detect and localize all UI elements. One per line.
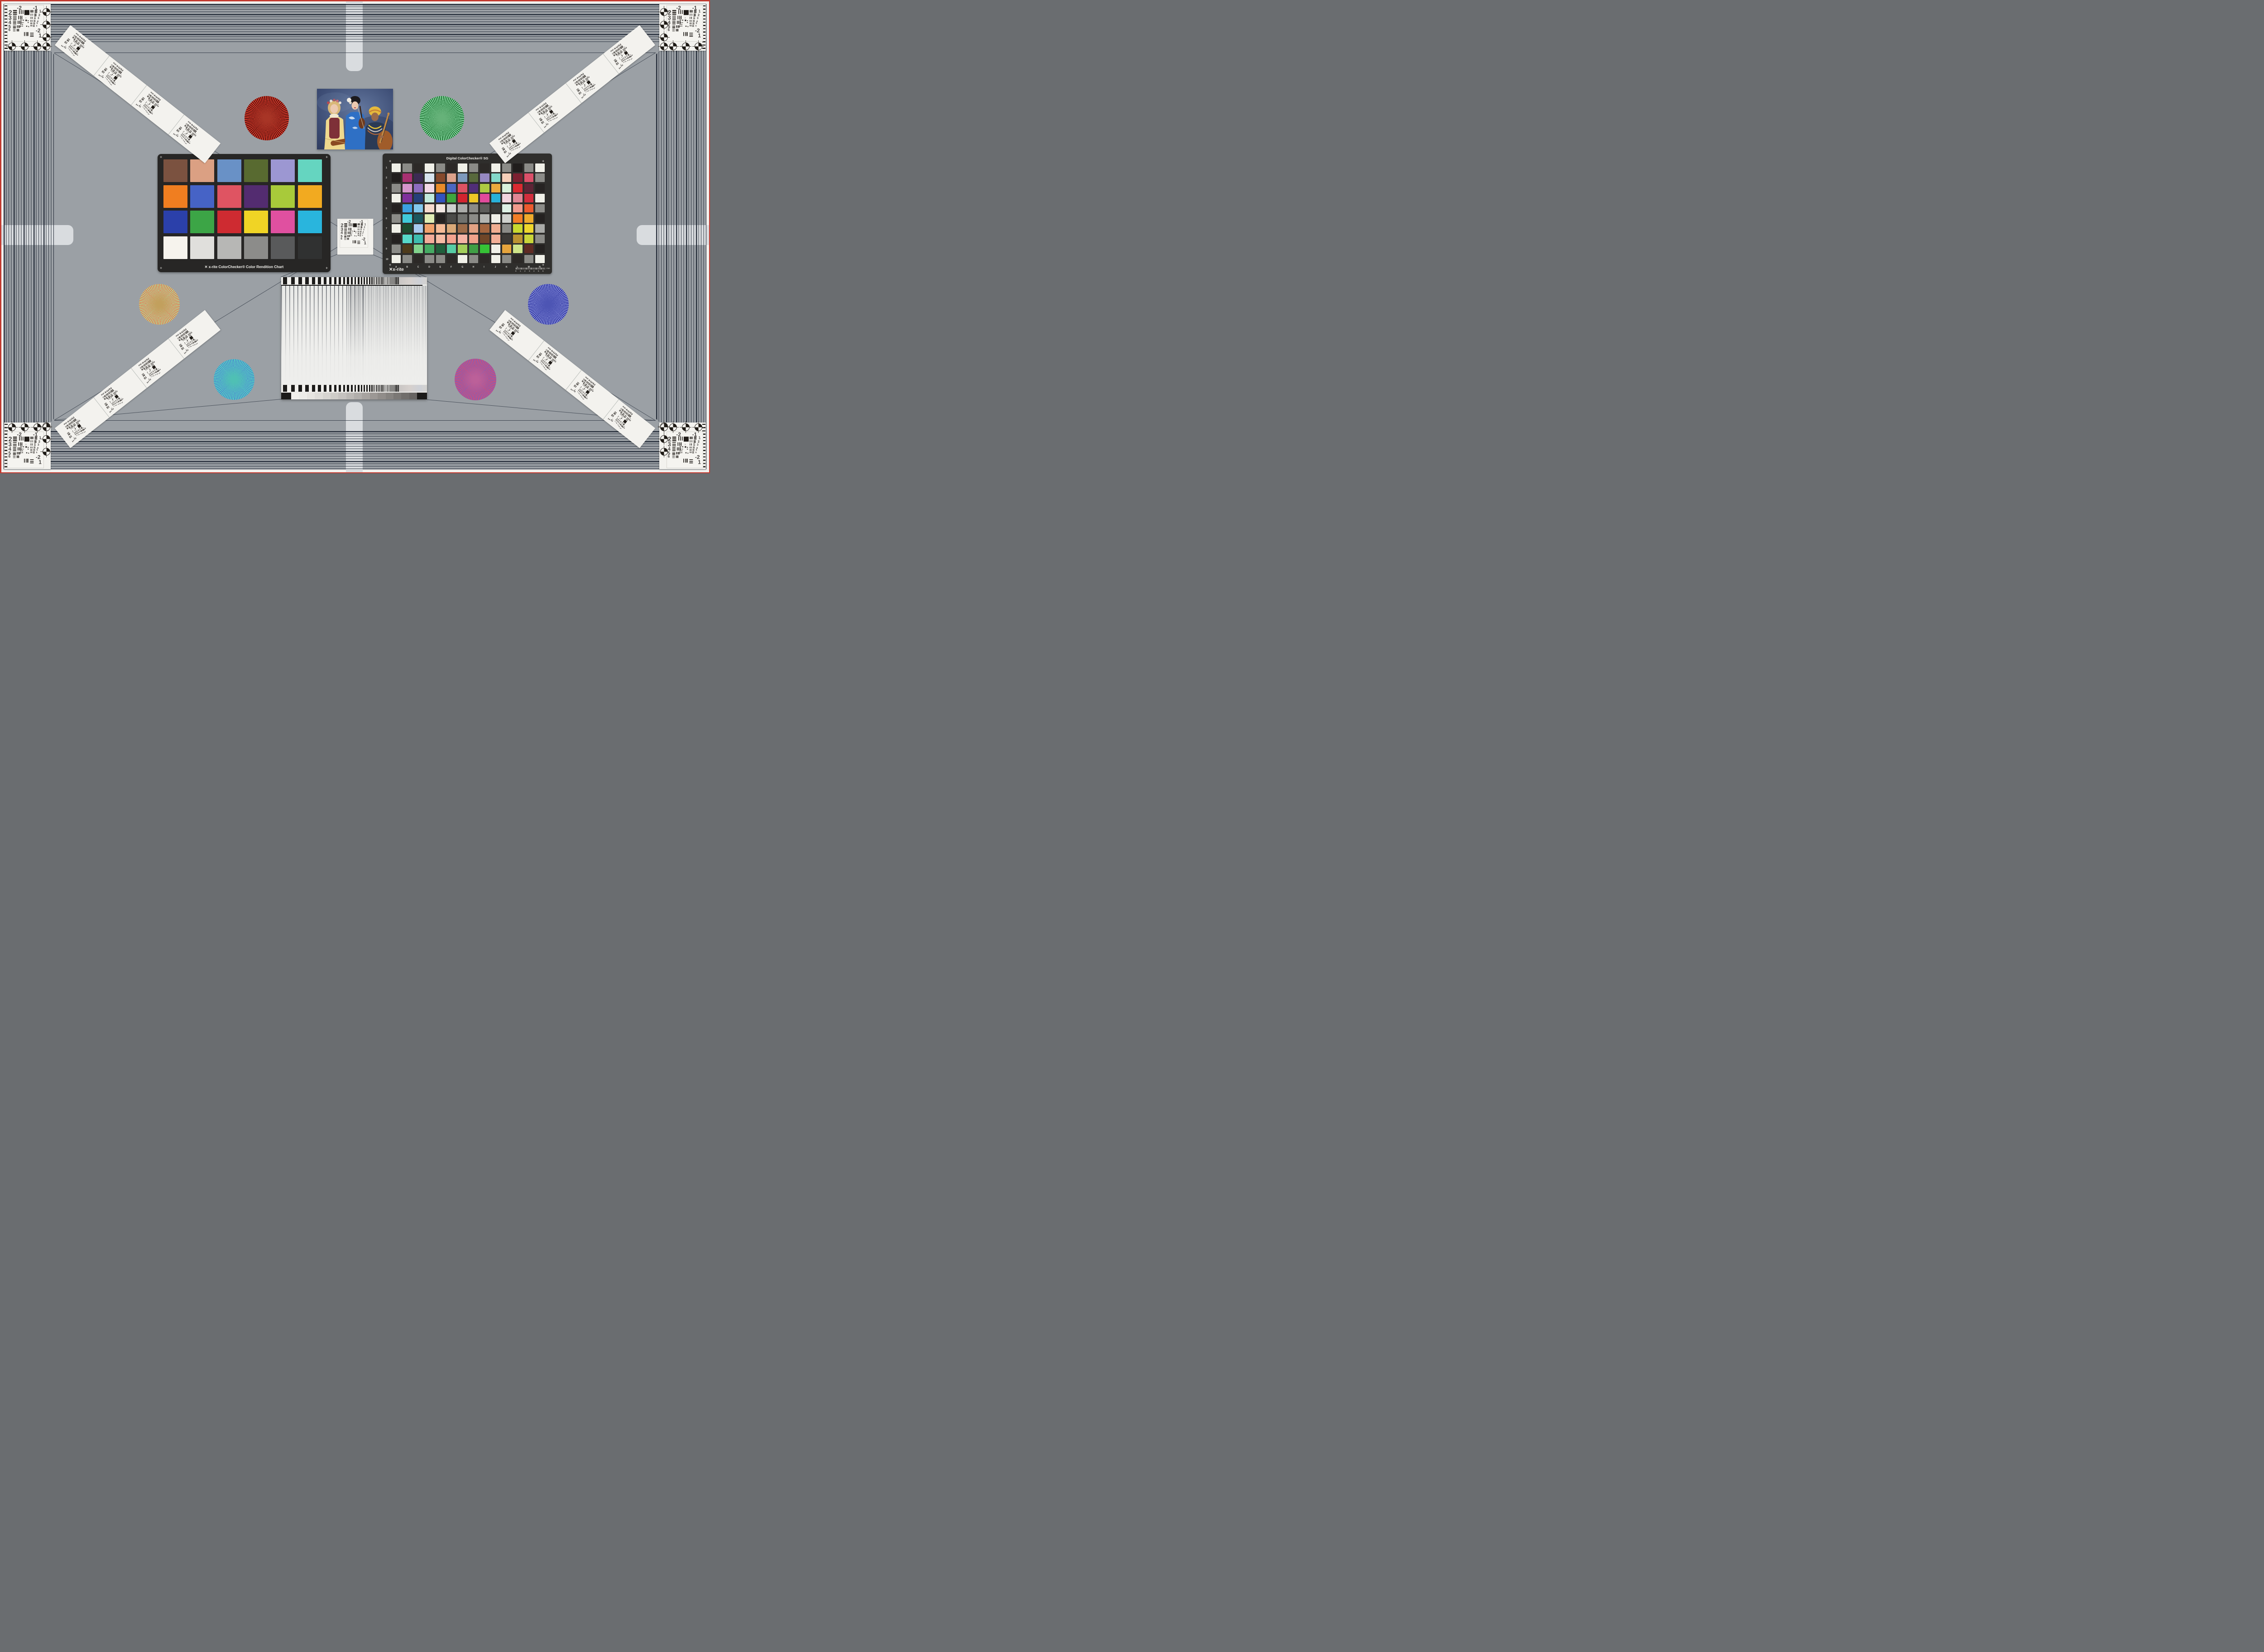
bar xyxy=(390,277,391,284)
usaf-right-vbars xyxy=(690,443,690,446)
usaf-right-vbars xyxy=(30,437,31,439)
sg-patch-8H xyxy=(469,235,478,243)
usaf-left-hbars xyxy=(672,447,676,448)
wedge-step-5 xyxy=(323,393,331,399)
usaf-left-hbars xyxy=(344,230,347,231)
usaf-right-hbars xyxy=(34,19,36,19)
usaf-right-hbars xyxy=(34,21,35,21)
usaf-right-hbars xyxy=(34,20,35,20)
usaf-right-hbars xyxy=(694,14,696,14)
usaf-bottom-label-1: 1 xyxy=(146,380,149,384)
sg-row-label-6: 6 xyxy=(386,217,387,220)
red-border-bottom xyxy=(0,472,710,474)
usaf-bottom-hbars xyxy=(357,242,360,243)
usaf-right-hbars xyxy=(693,18,696,18)
usaf-inner-vbars xyxy=(72,431,73,431)
sg-patch-3N xyxy=(535,184,544,192)
corner-card-top-left-usaf-target: -2-123456123456-2101 xyxy=(8,5,44,42)
usaf-right-vbars xyxy=(690,447,690,448)
sg-patch-1D xyxy=(425,163,434,172)
usaf-right-vbars xyxy=(691,25,691,26)
usaf-inner-vbars xyxy=(112,401,112,401)
sg-patch-7A xyxy=(392,224,401,233)
usaf-right-hbars xyxy=(694,14,696,15)
bar xyxy=(329,385,331,392)
bar xyxy=(343,277,345,284)
usaf-right-num-5: 5 xyxy=(696,449,697,451)
usaf-left-vbars xyxy=(19,447,20,451)
usaf-left-vbars xyxy=(679,442,680,446)
sg-patch-7J xyxy=(491,224,500,233)
sg-col-label-E: E xyxy=(440,266,441,269)
usaf-left-hbars xyxy=(13,452,16,452)
usaf-left-hbars xyxy=(672,452,675,452)
sg-corner-mark-0: + xyxy=(389,159,391,163)
usaf-inner-label-0: 0 xyxy=(186,336,187,337)
sg-patch-7L xyxy=(513,224,522,233)
usaf-left-vbars xyxy=(677,447,678,451)
usaf-left-vbars xyxy=(18,447,19,451)
cc24-patch-17 xyxy=(271,211,295,233)
sg-patch-4C xyxy=(414,194,423,202)
usaf-right-hbars xyxy=(34,21,35,22)
usaf-right-vbars xyxy=(358,226,358,228)
corner-card-top-left: -2-123456123456-2101 xyxy=(4,4,51,51)
usaf-right-hbars xyxy=(361,223,363,224)
bar xyxy=(329,277,331,284)
bar xyxy=(366,385,368,392)
usaf-right-hbars xyxy=(694,10,697,10)
usaf-right-num-6: 6 xyxy=(36,451,38,454)
sg-patch-7D xyxy=(425,224,434,233)
usaf-inner-hbars xyxy=(545,111,545,112)
wedge-step-1 xyxy=(291,393,299,399)
usaf-right-num-6: 6 xyxy=(150,376,152,377)
usaf-left-vbars xyxy=(680,437,681,441)
usaf-right-vbars xyxy=(691,449,691,451)
corner-card-top-right-fiducial-row-1 xyxy=(682,43,690,50)
sg-patch-8K xyxy=(502,235,511,243)
sg-patch-5D xyxy=(425,204,434,213)
sg-ruler-number-2: 2 xyxy=(524,270,526,272)
sg-patch-1I xyxy=(480,163,489,172)
usaf-left-hbars xyxy=(13,10,17,11)
cc24-corner-mark-2: + xyxy=(160,266,162,270)
cc24-patch-8 xyxy=(190,185,214,208)
sg-ruler-number-6: 6 xyxy=(542,270,544,272)
usaf-right-hbars xyxy=(34,447,35,447)
usaf-right-num-5: 5 xyxy=(37,23,38,25)
usaf-inner-vbars xyxy=(108,399,109,400)
sg-patch-3F xyxy=(447,184,456,192)
usaf-inner-vbars xyxy=(183,341,183,341)
corner-card-top-right-target-zone: -2-123456123456-2101 xyxy=(667,5,703,42)
usaf-left-hbars xyxy=(672,14,676,14)
sg-patch-1E xyxy=(436,163,445,172)
usaf-bottom-vbars xyxy=(685,32,686,36)
sg-patch-5A xyxy=(392,204,401,213)
cc24-patch-7 xyxy=(163,185,187,208)
usaf-inner-label-0: 0 xyxy=(584,81,585,82)
sweep-fade-overlay xyxy=(281,286,427,384)
usaf-bottom-label-1: 1 xyxy=(543,125,547,129)
usaf-inner-vbars xyxy=(109,399,110,399)
usaf-right-vbars xyxy=(692,14,692,16)
usaf-left-vbars xyxy=(676,25,677,28)
usaf-right-hbars xyxy=(693,19,696,19)
usaf-left-num-6: 6 xyxy=(535,109,537,111)
usaf-inner-vbars xyxy=(149,371,150,372)
usaf-inner-vbars xyxy=(620,414,621,414)
usaf-bottom-vbars xyxy=(683,459,684,462)
usaf-right-hbars xyxy=(694,439,697,439)
cc24-patch-22 xyxy=(244,236,268,259)
usaf-inner-label-0: 0 xyxy=(21,444,22,445)
usaf-inner-label-0: 0 xyxy=(546,110,547,111)
usaf-right-vbars xyxy=(691,443,692,446)
bar xyxy=(391,277,392,284)
usaf-inner-hbars xyxy=(618,54,618,55)
usaf-inner-vbars xyxy=(110,74,111,75)
usaf-big-square xyxy=(353,223,357,227)
usaf-right-vbars xyxy=(33,14,33,16)
sg-patch-5G xyxy=(458,204,467,213)
usaf-bottom-vbars xyxy=(685,459,686,462)
usaf-right-vbars xyxy=(690,440,690,442)
bar xyxy=(389,277,390,284)
sg-patch-9I xyxy=(480,245,489,253)
sg-patch-5C xyxy=(414,204,423,213)
wedge-step-7 xyxy=(338,393,346,399)
usaf-right-vbars xyxy=(691,447,692,448)
usaf-inner-vbars xyxy=(110,398,110,399)
usaf-inner-vbars xyxy=(186,339,187,339)
usaf-left-hbars xyxy=(672,10,676,11)
bar xyxy=(283,277,287,284)
usaf-inner-vbars xyxy=(508,330,508,330)
usaf-inner-hbars xyxy=(183,339,183,340)
red-border-left xyxy=(0,0,1,473)
usaf-inner-label-1: 1 xyxy=(685,444,686,445)
usaf-right-hbars xyxy=(360,226,362,226)
sg-patch-6M xyxy=(524,214,533,223)
bar xyxy=(361,385,362,392)
usaf-inner-vbars xyxy=(585,86,585,86)
usaf-left-num-6: 6 xyxy=(138,364,140,366)
bar xyxy=(393,385,393,392)
corner-card-bottom-right-target-zone: -2-123456123456-2101 xyxy=(667,432,703,468)
sg-patch-3K xyxy=(502,184,511,192)
usaf-inner-vbars xyxy=(621,57,622,58)
usaf-left-hbars xyxy=(13,28,16,28)
usaf-left-hbars xyxy=(672,457,675,458)
usaf-bottom-hbars xyxy=(30,461,34,462)
usaf-inner-vbars xyxy=(544,116,545,117)
sweep-main-area xyxy=(281,286,427,384)
usaf-left-hbars xyxy=(672,19,676,20)
usaf-left-hbars xyxy=(344,228,347,228)
usaf-inner-vbars xyxy=(186,129,186,130)
usaf-big-square xyxy=(24,437,29,442)
usaf-bottom-label-1: 1 xyxy=(109,410,112,413)
usaf-inner-vbars xyxy=(683,446,683,447)
cc24-patch-11 xyxy=(271,185,295,208)
usaf-inner-hbars xyxy=(73,426,73,426)
usaf-right-hbars xyxy=(361,225,363,226)
usaf-left-hbars xyxy=(13,19,17,20)
usaf-inner-hbars xyxy=(185,337,185,338)
usaf-inner-vbars xyxy=(146,370,147,370)
sg-patch-6G xyxy=(458,214,467,223)
sg-row-label-8: 8 xyxy=(386,238,387,240)
usaf-left-num-6: 6 xyxy=(341,237,342,240)
usaf-bottom-vbars xyxy=(353,240,353,243)
usaf-left-num-6: 6 xyxy=(547,346,550,349)
grayscale-step-wedge xyxy=(281,393,427,399)
sg-col-label-N: N xyxy=(539,266,541,269)
sg-row-label-1: 1 xyxy=(386,167,387,169)
usaf-right-hbars xyxy=(361,224,363,225)
usaf-left-hbars xyxy=(672,31,675,31)
corner-card-bottom-left-target-zone: -2-123456123456-2101 xyxy=(7,432,44,468)
usaf-left-vbars xyxy=(19,16,19,19)
usaf-left-vbars xyxy=(678,10,679,14)
usaf-right-num-6: 6 xyxy=(585,91,586,92)
corner-card-bottom-right-fiducial-col-2 xyxy=(660,448,668,456)
usaf-right-hbars xyxy=(35,11,38,12)
bar xyxy=(376,385,377,392)
usaf-right-hbars xyxy=(33,26,34,27)
bar xyxy=(393,277,393,284)
bar xyxy=(387,277,388,284)
sg-patch-5I xyxy=(480,204,489,213)
usaf-left-num-6: 6 xyxy=(510,317,513,319)
usaf-inner-label-0: 0 xyxy=(149,366,150,367)
usaf-left-hbars xyxy=(344,234,346,234)
bar xyxy=(386,277,386,284)
usaf-left-hbars xyxy=(13,440,17,441)
corner-card-top-left-fiducial-row-2 xyxy=(34,43,41,50)
usaf-right-num-5: 5 xyxy=(578,392,580,393)
usaf-right-hbars xyxy=(693,21,695,21)
sg-patch-9K xyxy=(502,245,511,253)
sg-patch-1L xyxy=(513,163,522,172)
usaf-left-vbars xyxy=(679,452,679,455)
usaf-left-vbars xyxy=(678,442,679,446)
usaf-right-vbars xyxy=(360,223,360,225)
usaf-inner-hbars xyxy=(617,55,617,55)
usaf-bottom-hbars xyxy=(689,34,693,35)
usaf-left-hbars xyxy=(13,12,17,13)
usaf-inner-label-1: 1 xyxy=(25,444,26,445)
usaf-inner-hbars xyxy=(508,141,508,141)
usaf-inner-vbars xyxy=(145,370,146,370)
usaf-left-vbars xyxy=(21,437,22,441)
sg-patch-10J xyxy=(491,255,500,264)
bar xyxy=(355,277,356,284)
usaf-right-vbars xyxy=(32,23,32,24)
wedge-step-15 xyxy=(401,393,409,399)
cc24-patch-20 xyxy=(190,236,214,259)
usaf-left-vbars xyxy=(677,21,678,24)
usaf-right-vbars xyxy=(359,223,359,225)
sg-col-label-G: G xyxy=(461,266,463,269)
usaf-bottom-hbars xyxy=(689,461,693,462)
sg-patch-1H xyxy=(469,163,478,172)
usaf-left-vbars xyxy=(347,235,348,237)
portrait-illustration xyxy=(317,89,393,149)
sg-ruler-icon xyxy=(516,268,546,269)
usaf-left-hbars xyxy=(344,237,346,237)
usaf-right-hbars xyxy=(34,441,37,442)
usaf-right-num-6: 6 xyxy=(696,25,697,27)
bar xyxy=(339,277,341,284)
usaf-left-hbars xyxy=(13,31,15,31)
usaf-left-vbars xyxy=(20,16,21,19)
corner-card-top-right-fiducial-col-1 xyxy=(660,21,668,29)
corner-card-top-right-fiducial-col-2 xyxy=(660,34,668,41)
usaf-right-vbars xyxy=(30,14,31,16)
usaf-inner-hbars xyxy=(542,114,542,114)
sg-col-label-M: M xyxy=(528,266,530,269)
usaf-right-num-5: 5 xyxy=(68,48,70,50)
usaf-bottom-vbars xyxy=(24,459,25,462)
sg-patch-7E xyxy=(436,224,445,233)
usaf-inner-vbars xyxy=(582,84,583,84)
cc24-patch-2 xyxy=(190,159,214,182)
usaf-right-vbars xyxy=(30,10,31,13)
usaf-inner-label-1: 1 xyxy=(76,427,77,428)
sg-patch-9N xyxy=(535,245,544,253)
inner-boundary-bottom xyxy=(54,420,656,421)
usaf-inner-vbars xyxy=(547,116,547,116)
usaf-left-vbars xyxy=(349,223,350,226)
frame-band-left xyxy=(4,4,54,469)
corner-card-bottom-right: -2-123456123456-2101 xyxy=(659,423,706,469)
corner-card-bottom-left-fiducial-col-2 xyxy=(43,448,50,456)
usaf-left-num-6: 6 xyxy=(498,138,500,140)
colorchecker-sg-chart: Digital ColorChecker® SG ✕x-rite mm 1234… xyxy=(383,154,552,274)
sg-patch-1K xyxy=(502,163,511,172)
bar xyxy=(379,385,380,392)
sg-patch-5H xyxy=(469,204,478,213)
bar xyxy=(351,277,353,284)
sg-patch-10F xyxy=(447,255,456,264)
sg-col-label-C: C xyxy=(417,266,419,269)
usaf-bottom-label-1: 1 xyxy=(570,388,574,391)
usaf-right-hbars xyxy=(693,451,695,451)
bar xyxy=(366,277,368,284)
sg-patch-9J xyxy=(491,245,500,253)
usaf-inner-vbars xyxy=(508,326,508,326)
usaf-right-hbars xyxy=(34,14,37,15)
usaf-right-num-5: 5 xyxy=(143,107,145,108)
sg-patch-7K xyxy=(502,224,511,233)
sg-patch-4B xyxy=(403,194,412,202)
sg-col-label-H: H xyxy=(473,266,475,269)
usaf-right-num-6: 6 xyxy=(36,25,38,27)
usaf-right-vbars xyxy=(31,440,32,442)
usaf-right-hbars xyxy=(693,443,696,444)
usaf-inner-label-1: 1 xyxy=(548,360,549,360)
sg-patch-6F xyxy=(447,214,456,223)
usaf-right-vbars xyxy=(359,229,360,230)
usaf-right-vbars xyxy=(359,226,359,228)
usaf-left-vbars xyxy=(678,437,679,441)
usaf-left-vbars xyxy=(350,223,351,226)
sg-patch-7H xyxy=(469,224,478,233)
usaf-left-vbars xyxy=(348,228,349,231)
sg-patch-1G xyxy=(458,163,467,172)
usaf-right-vbars xyxy=(690,17,690,19)
cc24-patch-6 xyxy=(298,159,322,182)
bar xyxy=(392,277,393,284)
bar xyxy=(378,385,379,392)
sg-patch-6K xyxy=(502,214,511,223)
cc24-patch-21 xyxy=(217,236,241,259)
bar xyxy=(379,277,380,284)
usaf-right-vbars xyxy=(31,443,32,446)
usaf-right-hbars xyxy=(360,234,361,235)
sg-patch-2H xyxy=(469,173,478,182)
usaf-left-vbars xyxy=(19,10,20,14)
sg-patch-7M xyxy=(524,224,533,233)
usaf-inner-hbars xyxy=(580,84,580,84)
cc24-patch-15 xyxy=(217,211,241,233)
usaf-right-num-5: 5 xyxy=(37,449,38,451)
usaf-left-hbars xyxy=(672,442,676,443)
wedge-step-3 xyxy=(307,393,315,399)
usaf-bottom-hbars xyxy=(30,34,34,35)
usaf-right-vbars xyxy=(690,20,690,22)
usaf-big-square xyxy=(684,437,689,442)
sg-patch-8B xyxy=(403,235,412,243)
usaf-right-hbars xyxy=(693,445,696,446)
usaf-bottom-label-1: 1 xyxy=(98,73,101,77)
sg-patch-6C xyxy=(414,214,423,223)
sg-patch-10K xyxy=(502,255,511,264)
usaf-right-hbars xyxy=(360,227,362,228)
usaf-inner-hbars xyxy=(145,369,146,369)
usaf-left-hbars xyxy=(672,453,675,453)
sg-patch-2C xyxy=(414,173,423,182)
usaf-left-hbars xyxy=(672,446,676,447)
bar xyxy=(369,385,370,392)
bar xyxy=(386,385,386,392)
usaf-right-hbars xyxy=(693,447,695,447)
usaf-right-vbars xyxy=(32,447,33,448)
usaf-inner-vbars xyxy=(505,144,506,144)
usaf-inner-square xyxy=(25,446,27,447)
star-magenta xyxy=(455,359,496,400)
usaf-right-vbars xyxy=(32,451,32,453)
sg-patch-10E xyxy=(436,255,445,264)
corner-card-top-left-target-zone: -2-123456123456-2101 xyxy=(7,5,44,42)
corner-card-top-right-usaf-target: -2-123456123456-2101 xyxy=(667,5,704,42)
usaf-right-hbars xyxy=(34,24,35,24)
usaf-right-num-6: 6 xyxy=(362,235,363,237)
bar xyxy=(387,385,388,392)
bar xyxy=(324,385,326,392)
usaf-inner-vbars xyxy=(150,370,151,371)
red-border-right xyxy=(709,0,710,473)
cc24-patch-14 xyxy=(190,211,214,233)
usaf-left-hbars xyxy=(672,26,675,27)
usaf-left-vbars xyxy=(678,16,679,19)
sg-patch-7N xyxy=(535,224,544,233)
usaf-inner-hbars xyxy=(582,82,583,82)
usaf-left-hbars xyxy=(13,14,17,14)
